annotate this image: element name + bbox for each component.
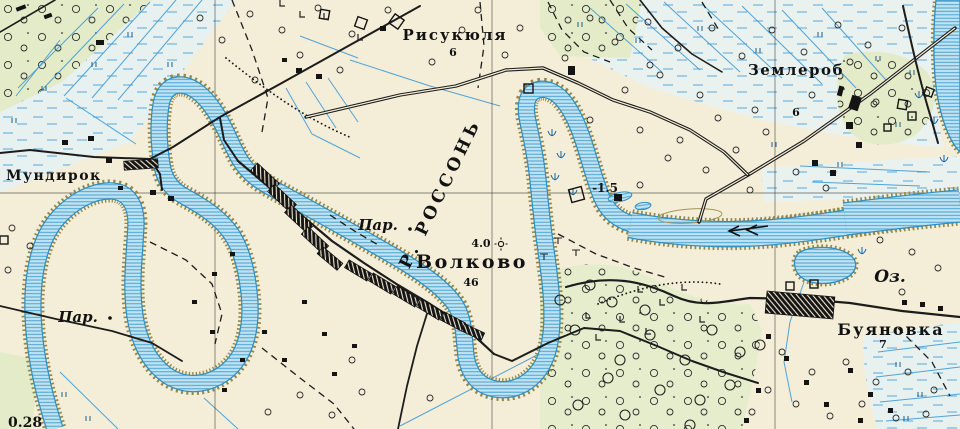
settlement-label-mundirok: Мундирок bbox=[6, 168, 102, 184]
ferry-label-center: Пар. bbox=[357, 216, 398, 234]
zemlerob-number: 6 bbox=[792, 106, 800, 119]
ferry-dot-west bbox=[108, 316, 112, 320]
settlement-label-buyanovka: Буяновка bbox=[837, 320, 944, 339]
settlement-label-volkovo: Волково bbox=[416, 251, 528, 273]
bottom-left-value: 0.28 bbox=[8, 415, 42, 429]
depth-mark: -1.5 bbox=[592, 181, 618, 195]
risukyulya-number: 6 bbox=[449, 46, 457, 59]
settlement-label-zemlerob: Землероб bbox=[748, 61, 844, 79]
lake-label: Оз. bbox=[874, 267, 906, 287]
volkovo-spot-height: 4.0 bbox=[471, 237, 490, 250]
topographic-map: Рисукюля 6 Землероб 6 Мундирок Р. РОССОН… bbox=[0, 0, 960, 429]
ferry-label-west: Пар. bbox=[57, 308, 98, 326]
buyanovka-number: 7 bbox=[879, 338, 887, 351]
map-canvas: Рисукюля 6 Землероб 6 Мундирок Р. РОССОН… bbox=[0, 0, 960, 429]
volkovo-number: 46 bbox=[463, 276, 479, 289]
settlement-label-risukyulya: Рисукюля bbox=[402, 26, 507, 44]
